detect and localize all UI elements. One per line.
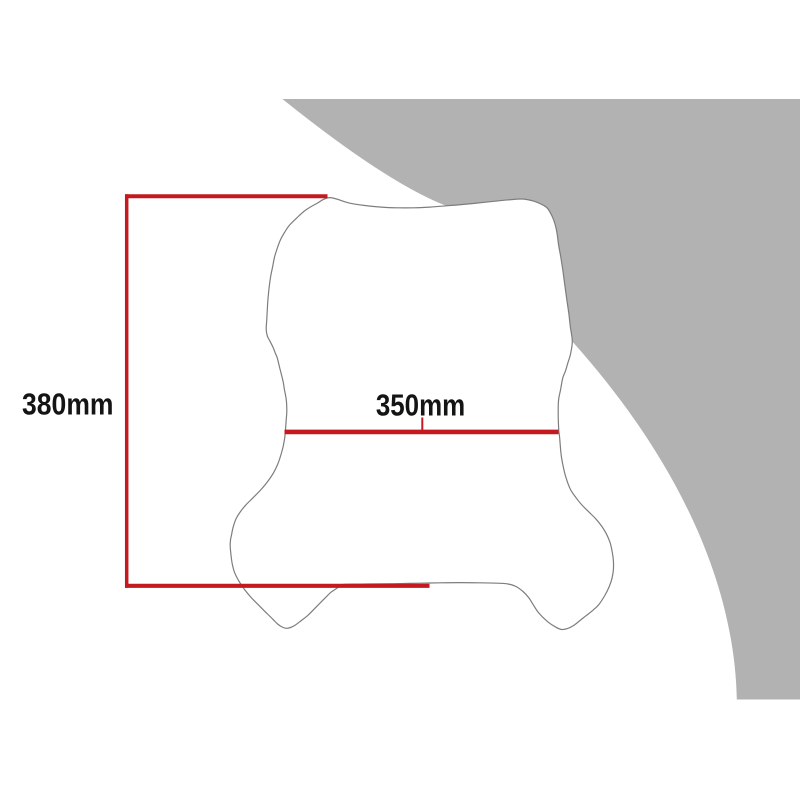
svg-text:350mm: 350mm [376,387,465,421]
svg-text:380mm: 380mm [22,388,113,422]
